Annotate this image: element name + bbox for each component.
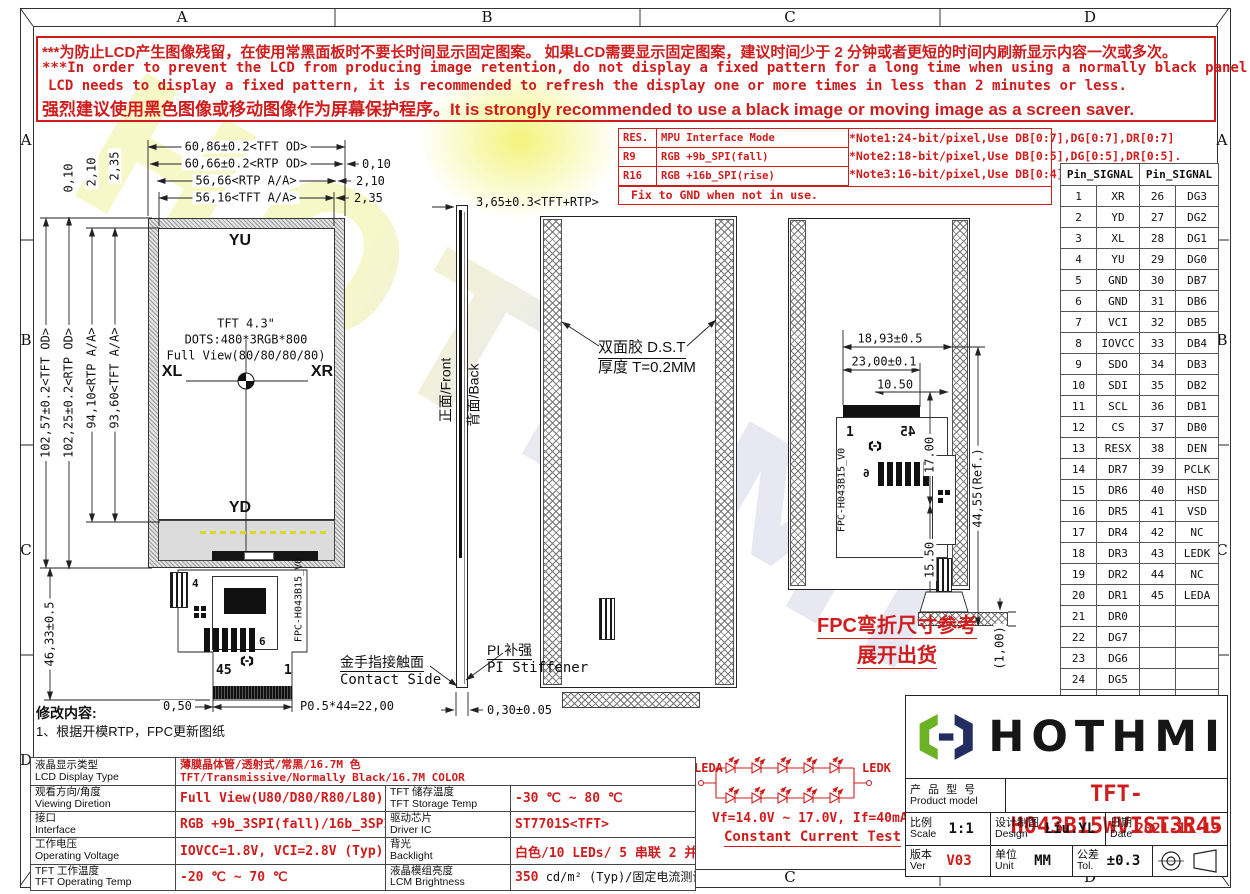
dim-rtp-od-width: 60,66±0.2<RTP OD> (182, 157, 311, 170)
cell: 19 (1061, 564, 1097, 585)
model-row: 产 品 型 号 Product model TFT-H043B15WVIST3R… (906, 778, 1227, 812)
model-label-en: Product model (910, 796, 978, 808)
grid-col-label: A (177, 8, 188, 26)
cell: 4 (1061, 249, 1097, 270)
dim-fpc-1550: 15.50 (923, 539, 936, 581)
dim-tft-aa-width: 56,16<TFT A/A> (192, 191, 299, 204)
dim-fpc-17: 17.00 (923, 434, 936, 476)
touch-label-yd: YD (229, 499, 251, 517)
back-view-fpc-foot (562, 692, 700, 708)
table-row: 10SDI35DB2 (1061, 375, 1219, 396)
cell: IOVCC (1097, 333, 1140, 354)
fpc-resistor-pad (194, 606, 199, 611)
fpc-folded-tongue (936, 558, 952, 592)
fpc-resistor-pad (194, 613, 199, 618)
led-cathode-label: LEDK (862, 762, 891, 775)
grid-col-label: D (1084, 8, 1096, 26)
cell: 44 (1140, 564, 1176, 585)
cell: CS (1097, 417, 1140, 438)
cell (1176, 627, 1219, 648)
cell: NC (1176, 522, 1219, 543)
cell: SDI (1097, 375, 1140, 396)
note-bitmode: *Note1:24-bit/pixel,Use DB[0:7],DG[0:7],… (849, 131, 1049, 145)
cell: 15 (1061, 480, 1097, 501)
spec-value-cn: 薄膜晶体管/透射式/常黑/16.7M 色 (180, 759, 691, 772)
side-view-backlight-layer (464, 212, 465, 684)
cell: 34 (1140, 354, 1176, 375)
dim-tft-aa-height: 93,60<TFT A/A> (108, 324, 121, 431)
unit-value: MM (1017, 853, 1068, 869)
table-row: 19DR244NC (1061, 564, 1219, 585)
dim-rtp-aa-width: 56,66<RTP A/A> (192, 174, 299, 187)
cell: 9 (1061, 354, 1097, 375)
cell: 37 (1140, 417, 1176, 438)
cell: 40 (1140, 480, 1176, 501)
cell: 33 (1140, 333, 1176, 354)
cell: VSD (1176, 501, 1219, 522)
back-view-connector (599, 598, 615, 640)
cell: 5 (1061, 270, 1097, 291)
cell: DB1 (1176, 396, 1219, 417)
cell: DB3 (1176, 354, 1219, 375)
spec-row: TFT 工作温度 TFT Operating Temp -20 ℃ ~ 70 ℃… (31, 864, 696, 890)
cell: DG2 (1176, 207, 1219, 228)
cell: DR4 (1097, 522, 1140, 543)
cell: DR0 (1097, 606, 1140, 627)
tol-label-en: Tol. (1077, 861, 1099, 873)
version-cell: 版本 Ver V03 (906, 846, 991, 876)
title-block: HOTHMI 产 品 型 号 Product model TFT-H043B15… (905, 695, 1228, 877)
fpc-bend-note-2: 展开出货 (857, 645, 937, 669)
cell: 42 (1140, 522, 1176, 543)
cell: 35 (1140, 375, 1176, 396)
fpc-folded-pin1: 1 (846, 426, 854, 440)
date-label-en: Date (1110, 829, 1132, 841)
bonding-yellow-strip (200, 531, 330, 534)
model-label-cn: 产 品 型 号 (910, 784, 978, 796)
fpc-label-6: 6 (259, 636, 266, 648)
scale-design-date-row: 比例 Scale 1:1 设计制图 Design Liu.YL 日期 Date … (906, 812, 1227, 845)
dim-offset-right-1: 0,10 (362, 158, 391, 171)
spec-label: 背光 Backlight (386, 838, 511, 864)
cell: 10 (1061, 375, 1097, 396)
spec-value: Full View(U80/D80/R80/L80) (176, 786, 386, 812)
cell: 6 (1061, 291, 1097, 312)
fpc-gold-fingers (213, 686, 292, 699)
side-view-glass-layer (459, 210, 462, 558)
warning-line-en2: LCD needs to display a fixed pattern, it… (48, 78, 1127, 94)
cell: DB0 (1176, 417, 1219, 438)
cell: 45 (1140, 585, 1176, 606)
cell: DG5 (1097, 669, 1140, 690)
fpc-capacitor (240, 628, 246, 652)
cell: DB7 (1176, 270, 1219, 291)
ver-label-en: Ver (910, 861, 932, 873)
spec-value: ST7701S<TFT> (511, 812, 696, 838)
product-model: TFT-H043B15WVIST3R45 (1006, 779, 1227, 812)
cell: HSD (1176, 480, 1219, 501)
cell: XL (1097, 228, 1140, 249)
fpc-capacitor (222, 628, 228, 652)
table-row: 20DR145LEDA (1061, 585, 1219, 606)
cell: 27 (1140, 207, 1176, 228)
cell: 11 (1061, 396, 1097, 417)
cell: LEDA (1176, 585, 1219, 606)
cell: 1 (1061, 186, 1097, 207)
dim-total-thickness: 3,65±0.3<TFT+RTP> (476, 196, 599, 209)
cell: VCI (1097, 312, 1140, 333)
spec-value: -20 ℃ ~ 70 ℃ (176, 864, 386, 890)
side-back-label: 背面/Back (466, 363, 481, 426)
note-desc: RGB +9b_SPI(fall) (657, 148, 849, 167)
note-key: RES. (619, 129, 657, 148)
dim-tft-od-width: 60,86±0.2<TFT OD> (182, 140, 311, 153)
table-row: 4YU29DG0 (1061, 249, 1219, 270)
projection-symbol-icon (1158, 848, 1222, 874)
fpc-driver-ic (224, 588, 266, 614)
interface-mode-notes-table: RES. MPU Interface Mode R9 RGB +9b_SPI(f… (618, 128, 1052, 205)
warning-line-en1: ***In order to prevent the LCD from prod… (42, 60, 1250, 76)
touch-label-xr: XR (311, 363, 333, 381)
grid-row-label: B (20, 331, 31, 349)
cell: 18 (1061, 543, 1097, 564)
spec-value: IOVCC=1.8V, VCI=2.8V (Typ) (176, 838, 386, 864)
hothmi-logo-icon (916, 703, 976, 771)
date-value: 2021-11-19 (1132, 821, 1223, 837)
table-row: 24DG5 (1061, 669, 1219, 690)
table-row: 14DR739PCLK (1061, 459, 1219, 480)
cell: DB5 (1176, 312, 1219, 333)
logo-row: HOTHMI (906, 696, 1227, 778)
fpc-folded-capacitor (887, 462, 893, 486)
spec-label: TFT 工作温度 TFT Operating Temp (31, 864, 176, 890)
cell: DR2 (1097, 564, 1140, 585)
cell: 21 (1061, 606, 1097, 627)
cell (1176, 648, 1219, 669)
brightness-value: 350 (515, 870, 538, 885)
cell: DG6 (1097, 648, 1140, 669)
tolerance-cell: 公差 Tol. ±0.3 (1073, 846, 1153, 876)
cell: GND (1097, 270, 1140, 291)
spec-label: 观看方向/角度 Viewing Diretion (31, 786, 176, 812)
note-bitmode: *Note2:18-bit/pixel,Use DB[0:5],DG[0:5],… (849, 149, 1049, 163)
fpc-bend-note-1: FPC弯折尺寸参考 (817, 615, 977, 639)
spec-label: 液晶模组亮度 LCM Brightness (386, 864, 511, 890)
spec-row: 工作电压 Operating Voltage IOVCC=1.8V, VCI=2… (31, 838, 696, 864)
note-key: R16 (619, 167, 657, 186)
cell: 3 (1061, 228, 1097, 249)
table-row: 17DR442NC (1061, 522, 1219, 543)
cell: 26 (1140, 186, 1176, 207)
table-row: 16DR541VSD (1061, 501, 1219, 522)
table-row: 3XL28DG1 (1061, 228, 1219, 249)
cell: NC (1176, 564, 1219, 585)
spec-row: 液晶显示类型 LCD Display Type 薄膜晶体管/透射式/常黑/16.… (31, 758, 696, 786)
contact-side-label-en: Contact Side (340, 673, 441, 688)
spec-label-en: TFT Storage Temp (390, 799, 506, 811)
pin-table-header: Pin_SIGNAL Pin_SIGNAL (1061, 164, 1219, 186)
back-view-panel (540, 216, 737, 688)
dim-fpc-ref: 44,55(Ref.) (971, 445, 984, 530)
model-label: 产 品 型 号 Product model (906, 779, 1006, 812)
touch-label-yu: YU (229, 232, 251, 250)
cell: 31 (1140, 291, 1176, 312)
tape-thickness-label: 厚度 T=0.2MM (598, 360, 696, 377)
table-row: 5GND30DB7 (1061, 270, 1219, 291)
side-view-stack (456, 205, 468, 688)
pin-signal-table: Pin_SIGNAL Pin_SIGNAL 1XR26DG32YD27DG23X… (1060, 163, 1219, 711)
cell: 13 (1061, 438, 1097, 459)
cell: 43 (1140, 543, 1176, 564)
revision-title: 修改内容: (36, 706, 97, 721)
brightness-unit: cd/m² (Typ)/固定电流测试 (538, 870, 695, 884)
table-row: 1XR26DG3 (1061, 186, 1219, 207)
fpc-resistor-pad (201, 613, 206, 618)
fpc-view-tape-left (790, 220, 806, 586)
back-view-tape-right (715, 219, 734, 685)
dim-stiffener-thickness: 0,30±0.05 (487, 704, 552, 717)
spec-value: 350 cd/m² (Typ)/固定电流测试 (511, 864, 696, 890)
cell: DB2 (1176, 375, 1219, 396)
cell: 41 (1140, 501, 1176, 522)
lcd-spec-table: 液晶显示类型 LCD Display Type 薄膜晶体管/透射式/常黑/16.… (30, 757, 696, 891)
back-view-tape-left (543, 219, 562, 685)
date-cell: 日期 Date 2021-11-19 (1106, 813, 1227, 845)
fpc-pin45-label: 45 (216, 664, 232, 678)
led-vf-spec: Vf=14.0V ~ 17.0V, If=40mA (712, 812, 908, 826)
scale-label-en: Scale (910, 829, 936, 841)
fpc-folded-pin45: 45 (900, 426, 916, 440)
pi-stiffener-label-en: PI Stiffener (487, 661, 588, 676)
dim-offset-left-3: 2,35 (108, 149, 121, 184)
cell: GND (1097, 291, 1140, 312)
cell: 24 (1061, 669, 1097, 690)
cell: DG1 (1176, 228, 1219, 249)
cell: 23 (1061, 648, 1097, 669)
cell: 14 (1061, 459, 1097, 480)
table-row: 11SCL36DB1 (1061, 396, 1219, 417)
fpc-side-connector (170, 572, 188, 608)
dim-fpc-pin-pitch: P0.5*44=22,00 (300, 700, 394, 713)
grid-col-label: C (784, 868, 795, 886)
cell: 38 (1140, 438, 1176, 459)
spec-label: 驱动芯片 Driver IC (386, 812, 511, 838)
grid-col-label: B (481, 8, 492, 26)
scale-cell: 比例 Scale 1:1 (906, 813, 991, 845)
fpc-folded-capacitor (878, 462, 884, 486)
design-cell: 设计制图 Design Liu.YL (991, 813, 1106, 845)
scale-value: 1:1 (936, 821, 986, 837)
unit-label-en: Unit (995, 861, 1017, 873)
note-desc: MPU Interface Mode (657, 129, 849, 148)
dim-fpc-23: 23,00±0.1 (848, 355, 919, 368)
table-row: 23DG6 (1061, 648, 1219, 669)
spec-row: 接口 Interface RGB +9b_3SPI(fall)/16b_3SPI… (31, 812, 696, 838)
cell: 17 (1061, 522, 1097, 543)
cell: DB4 (1176, 333, 1219, 354)
pin-table-body: 1XR26DG32YD27DG23XL28DG14YU29DG05GND30DB… (1061, 186, 1219, 711)
cell: LEDK (1176, 543, 1219, 564)
fpc-capacitor (249, 628, 255, 652)
dim-tft-od-height: 102,57±0.2<TFT OD> (39, 325, 52, 461)
pi-stiffener-label-cn: PI 补强 (487, 643, 532, 660)
spec-label-en: Interface (35, 825, 171, 837)
note-fix-gnd: Fix to GND when not in use. (619, 186, 1051, 203)
cell: 39 (1140, 459, 1176, 480)
unit-cell: 单位 Unit MM (991, 846, 1073, 876)
hothmi-mark-icon (240, 655, 254, 667)
grid-row-label: A (21, 131, 32, 149)
cell: DEN (1176, 438, 1219, 459)
spec-label-en: LCD Display Type (35, 772, 171, 784)
cell: 30 (1140, 270, 1176, 291)
cell: 2 (1061, 207, 1097, 228)
fpc-folded-capacitor (905, 462, 911, 486)
spec-label-en: Viewing Diretion (35, 799, 171, 811)
led-test-note: Constant Current Test (724, 830, 901, 847)
version-value: V03 (932, 853, 986, 869)
led-anode-label: LEDA (694, 762, 723, 775)
cell: YD (1097, 207, 1140, 228)
table-row: 8IOVCC33DB4 (1061, 333, 1219, 354)
cell (1176, 606, 1219, 627)
cell: DR5 (1097, 501, 1140, 522)
fpc-capacitor (204, 628, 210, 652)
revision-item: 1、根据开模RTP，FPC更新图纸 (36, 725, 225, 739)
note-desc: RGB +16b_SPI(rise) (657, 167, 849, 186)
front-view-active-area (158, 228, 335, 520)
cell: 36 (1140, 396, 1176, 417)
side-front-label: 正面/Front (438, 358, 453, 423)
cell (1176, 669, 1219, 690)
cell: 28 (1140, 228, 1176, 249)
spec-value: -30 ℃ ~ 80 ℃ (511, 786, 696, 812)
table-row: 9SDO34DB3 (1061, 354, 1219, 375)
warning-line-screensaver: 强烈建议使用黑色图像或移动图像作为屏幕保护程序。It is strongly r… (42, 95, 1134, 120)
spec-label-en: LCM Brightness (390, 877, 506, 889)
fpc-folded-board-id: FPC-H043B15_V0 (837, 448, 848, 532)
dim-offset-left-1: 0,10 (62, 161, 75, 196)
table-row: 22DG7 (1061, 627, 1219, 648)
note-key: R9 (619, 148, 657, 167)
tolerance-value: ±0.3 (1099, 853, 1148, 869)
fpc-capacitor (213, 628, 219, 652)
version-unit-tol-row: 版本 Ver V03 单位 Unit MM 公差 Tol. ±0.3 (906, 845, 1227, 876)
cell: 7 (1061, 312, 1097, 333)
cell: SDO (1097, 354, 1140, 375)
spec-label-en: TFT Operating Temp (35, 877, 171, 889)
grid-col-label: C (784, 8, 795, 26)
table-row: 15DR640HSD (1061, 480, 1219, 501)
dim-offset-right-2: 2,10 (356, 175, 385, 188)
spec-label-en: Backlight (390, 851, 506, 863)
cell: 20 (1061, 585, 1097, 606)
dim-fpc-18: 18,93±0.5 (854, 332, 925, 345)
dim-fpc-foot-thickness: (1,00) (993, 623, 1006, 672)
cell: 29 (1140, 249, 1176, 270)
spec-value-en: TFT/Transmissive/Normally Black/16.7M CO… (180, 772, 691, 785)
cell (1140, 606, 1176, 627)
cell (1140, 627, 1176, 648)
warning-line-cn: ***为防止LCD产生图像残留，在使用常黑面板时不要长时间显示固定图案。 如果L… (42, 41, 1177, 62)
fpc-capacitor (231, 628, 237, 652)
pin-header-cell: Pin_SIGNAL (1140, 164, 1219, 186)
fpc-folded-capacitor (914, 462, 920, 486)
cell: DG0 (1176, 249, 1219, 270)
spec-label: 接口 Interface (31, 812, 176, 838)
table-row: 2YD27DG2 (1061, 207, 1219, 228)
spec-row: 观看方向/角度 Viewing Diretion Full View(U80/D… (31, 786, 696, 812)
fpc-pin1-label: 1 (284, 664, 292, 678)
grid-row-label: C (20, 541, 31, 559)
cell: DG3 (1176, 186, 1219, 207)
spec-label: 工作电压 Operating Voltage (31, 838, 176, 864)
spec-value: 白色/10 LEDs/ 5 串联 2 并联 (511, 838, 696, 864)
cell: 32 (1140, 312, 1176, 333)
hothmi-mark-icon (868, 440, 882, 452)
fpc-folded-capacitor (896, 462, 902, 486)
spec-label-cn: 液晶显示类型 (35, 760, 171, 772)
cell: YU (1097, 249, 1140, 270)
dim-fpc-height: 46,33±0.5 (43, 598, 56, 669)
fpc-folded-label6: 6 (863, 468, 870, 480)
contact-side-label-cn: 金手指接触面 (340, 655, 424, 672)
panel-view-text: Full View(80/80/80/80) (167, 349, 326, 362)
cell: DR6 (1097, 480, 1140, 501)
fpc-folded-gold-fingers (843, 405, 920, 417)
dim-rtp-aa-height: 94,10<RTP A/A> (85, 324, 98, 431)
grid-row-label: A (1217, 131, 1228, 149)
cell: PCLK (1176, 459, 1219, 480)
fpc-label-4: 4 (192, 578, 199, 590)
cell: 16 (1061, 501, 1097, 522)
table-row: 12CS37DB0 (1061, 417, 1219, 438)
spec-value: RGB +9b_3SPI(fall)/16b_3SPI(rise) (176, 812, 386, 838)
dim-offset-left-2: 2,10 (85, 155, 98, 190)
dim-rtp-od-height: 102,25±0.2<RTP OD> (62, 325, 75, 461)
fpc-folded-pad (938, 490, 943, 495)
designer-name: Liu.YL (1039, 821, 1101, 837)
table-row: 21DR0 (1061, 606, 1219, 627)
tape-callout-cn: 双面胶 D.S.T (598, 340, 686, 359)
cell: RESX (1097, 438, 1140, 459)
fpc-folded-pad (938, 498, 943, 503)
cell (1140, 669, 1176, 690)
cell: DR7 (1097, 459, 1140, 480)
panel-dots-text: DOTS:480*3RGB*800 (185, 333, 308, 346)
note-bitmode: *Note3:16-bit/pixel,Use DB[0:4],DG[0:5],… (849, 167, 1049, 181)
fpc-resistor-pad (201, 606, 206, 611)
cell (1140, 648, 1176, 669)
spec-value: 薄膜晶体管/透射式/常黑/16.7M 色 TFT/Transmissive/No… (176, 758, 696, 786)
table-row: 18DR343LEDK (1061, 543, 1219, 564)
projection-cell (1153, 846, 1227, 876)
cell: 22 (1061, 627, 1097, 648)
fpc-folded-pad (945, 490, 950, 495)
spec-label: 液晶显示类型 LCD Display Type (31, 758, 176, 786)
spec-label-en: Operating Voltage (35, 851, 171, 863)
spec-label: TFT 储存温度 TFT Storage Temp (386, 786, 511, 812)
dim-fpc-1050: 10.50 (874, 378, 916, 391)
spec-label-en: Driver IC (390, 825, 506, 837)
dim-fpc-left-margin: 0,50 (160, 700, 195, 713)
table-row: 6GND31DB6 (1061, 291, 1219, 312)
panel-size-text: TFT 4.3" (217, 317, 275, 330)
cell: XR (1097, 186, 1140, 207)
design-label-en: Design (995, 829, 1039, 841)
cell: 8 (1061, 333, 1097, 354)
brand-name: HOTHMI (988, 712, 1227, 762)
